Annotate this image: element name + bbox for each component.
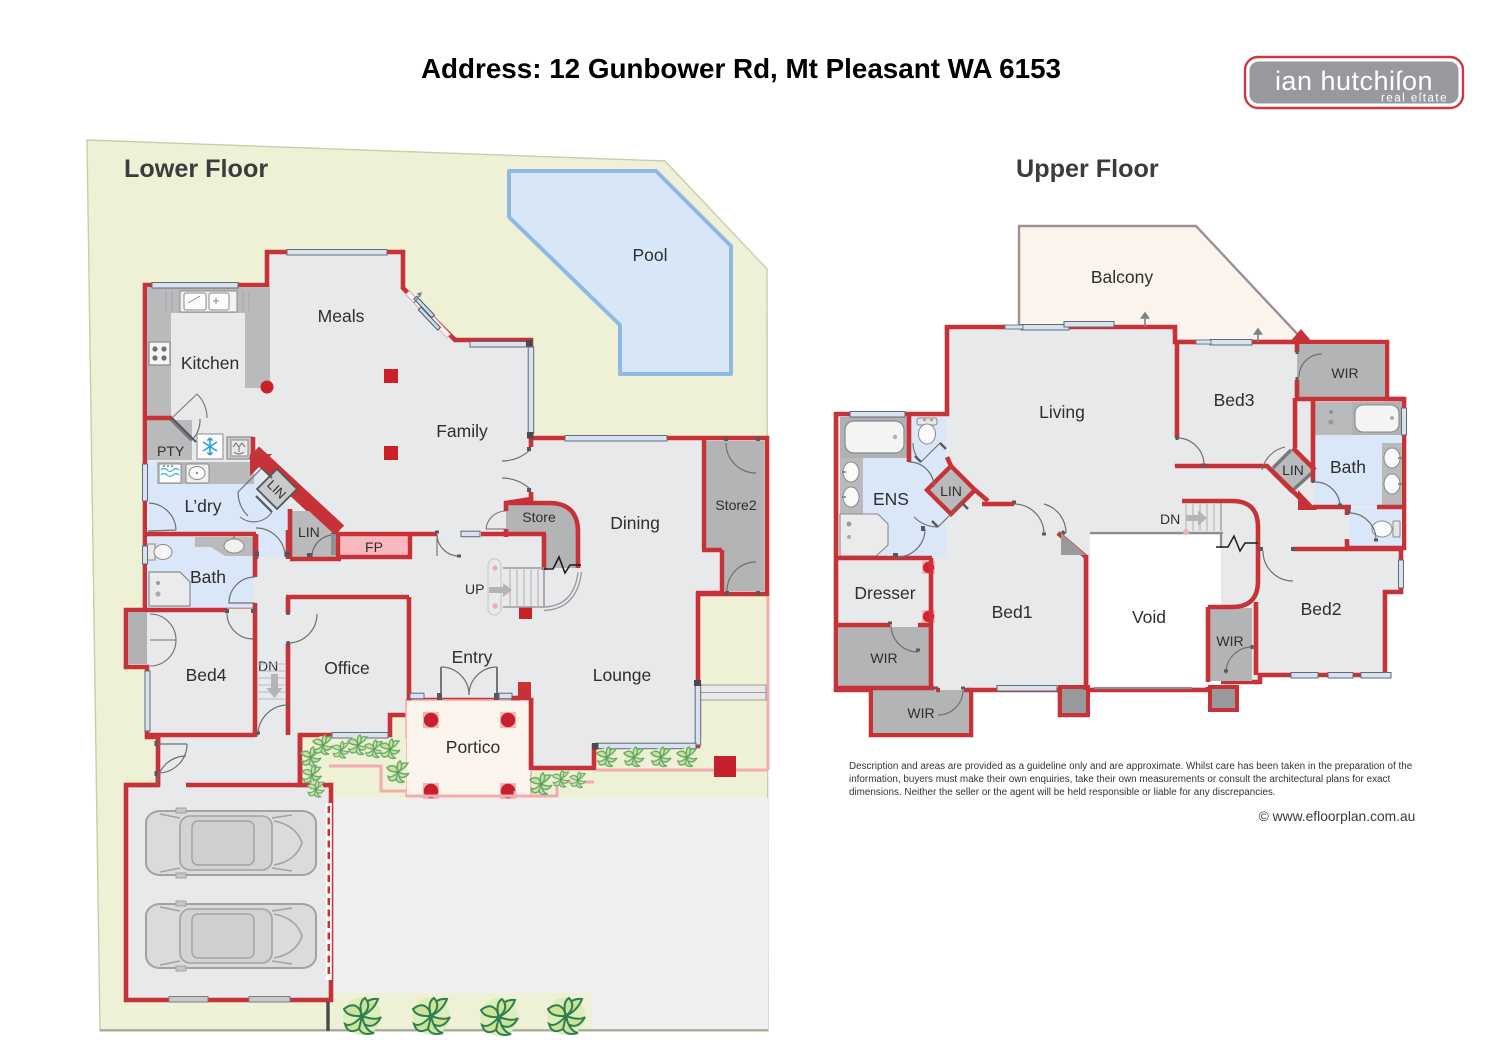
svg-text:Meals: Meals bbox=[318, 306, 365, 326]
svg-text:Pool: Pool bbox=[632, 245, 667, 265]
svg-text:DN: DN bbox=[1160, 511, 1180, 527]
svg-text:dimensions. Neither the seller: dimensions. Neither the seller or the ag… bbox=[849, 787, 1276, 798]
svg-text:Bed1: Bed1 bbox=[992, 602, 1033, 622]
svg-text:Dresser: Dresser bbox=[854, 583, 915, 603]
svg-text:PTY: PTY bbox=[157, 443, 185, 459]
svg-text:FP: FP bbox=[365, 539, 383, 555]
svg-text:ian hutchiſon: ian hutchiſon bbox=[1275, 66, 1433, 96]
svg-text:DN: DN bbox=[258, 658, 278, 674]
svg-text:Store2: Store2 bbox=[715, 497, 756, 513]
svg-text:Bath: Bath bbox=[1330, 457, 1366, 477]
svg-text:L’dry: L’dry bbox=[185, 496, 222, 516]
svg-text:Office: Office bbox=[324, 658, 369, 678]
svg-text:ENS: ENS bbox=[873, 489, 909, 509]
svg-text:Kitchen: Kitchen bbox=[181, 353, 239, 373]
svg-text:real eſtate: real eſtate bbox=[1381, 93, 1448, 105]
svg-text:Portico: Portico bbox=[446, 737, 500, 757]
svg-text:Entry: Entry bbox=[452, 647, 493, 667]
svg-text:WIR: WIR bbox=[1331, 365, 1358, 381]
svg-text:Store: Store bbox=[522, 509, 556, 525]
svg-text:WIR: WIR bbox=[1216, 633, 1243, 649]
svg-text:Balcony: Balcony bbox=[1091, 267, 1154, 287]
svg-text:Lounge: Lounge bbox=[593, 665, 651, 685]
svg-text:information, buyers must make: information, buyers must make their own … bbox=[849, 774, 1390, 785]
svg-text:Bed3: Bed3 bbox=[1214, 390, 1255, 410]
svg-text:Bath: Bath bbox=[190, 567, 226, 587]
svg-text:Living: Living bbox=[1039, 402, 1085, 422]
svg-text:LIN: LIN bbox=[1282, 462, 1304, 478]
svg-text:LIN: LIN bbox=[298, 524, 320, 540]
svg-text:Lower Floor: Lower Floor bbox=[124, 155, 268, 183]
svg-text:LIN: LIN bbox=[940, 483, 962, 499]
svg-text:© www.efloorplan.com.au: © www.efloorplan.com.au bbox=[1259, 809, 1416, 824]
svg-text:Bed4: Bed4 bbox=[186, 665, 227, 685]
svg-text:WIR: WIR bbox=[870, 650, 897, 666]
svg-text:Dining: Dining bbox=[610, 513, 660, 533]
svg-text:Void: Void bbox=[1132, 607, 1166, 627]
svg-text:Bed2: Bed2 bbox=[1301, 599, 1342, 619]
svg-text:UP: UP bbox=[465, 581, 484, 597]
svg-text:WIR: WIR bbox=[907, 705, 934, 721]
svg-text:Address: 12 Gunbower Rd, Mt Pl: Address: 12 Gunbower Rd, Mt Pleasant WA … bbox=[421, 53, 1061, 84]
svg-text:Description and areas are prov: Description and areas are provided as a … bbox=[849, 761, 1413, 772]
svg-text:Family: Family bbox=[436, 421, 488, 441]
svg-text:Upper Floor: Upper Floor bbox=[1016, 155, 1159, 183]
